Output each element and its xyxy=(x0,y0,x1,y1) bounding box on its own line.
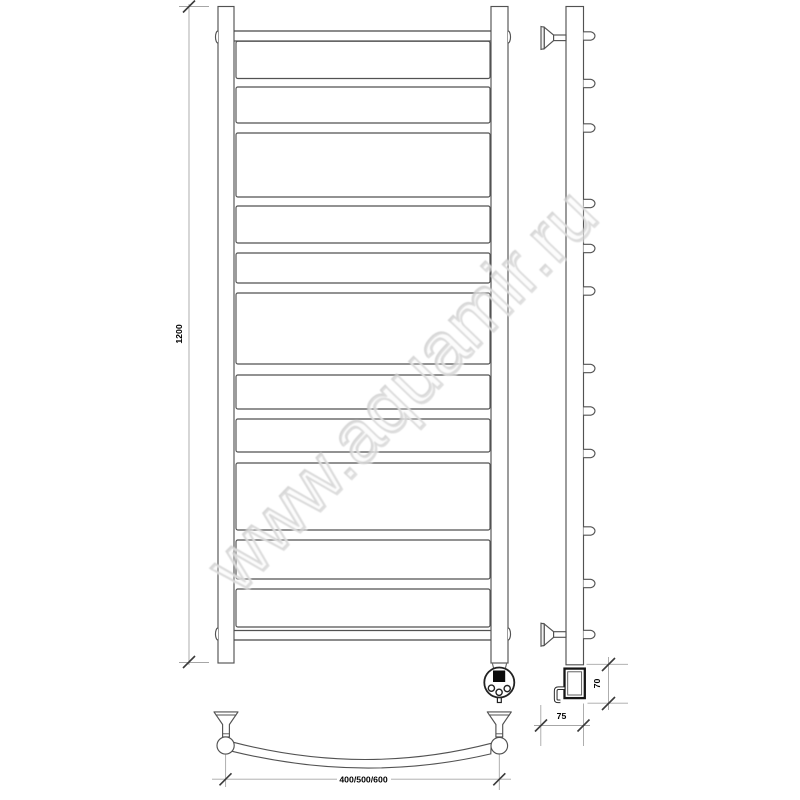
svg-text:70: 70 xyxy=(592,679,602,689)
svg-text:75: 75 xyxy=(557,711,567,721)
svg-text:400/500/600: 400/500/600 xyxy=(339,775,387,785)
svg-text:1200: 1200 xyxy=(174,324,184,343)
